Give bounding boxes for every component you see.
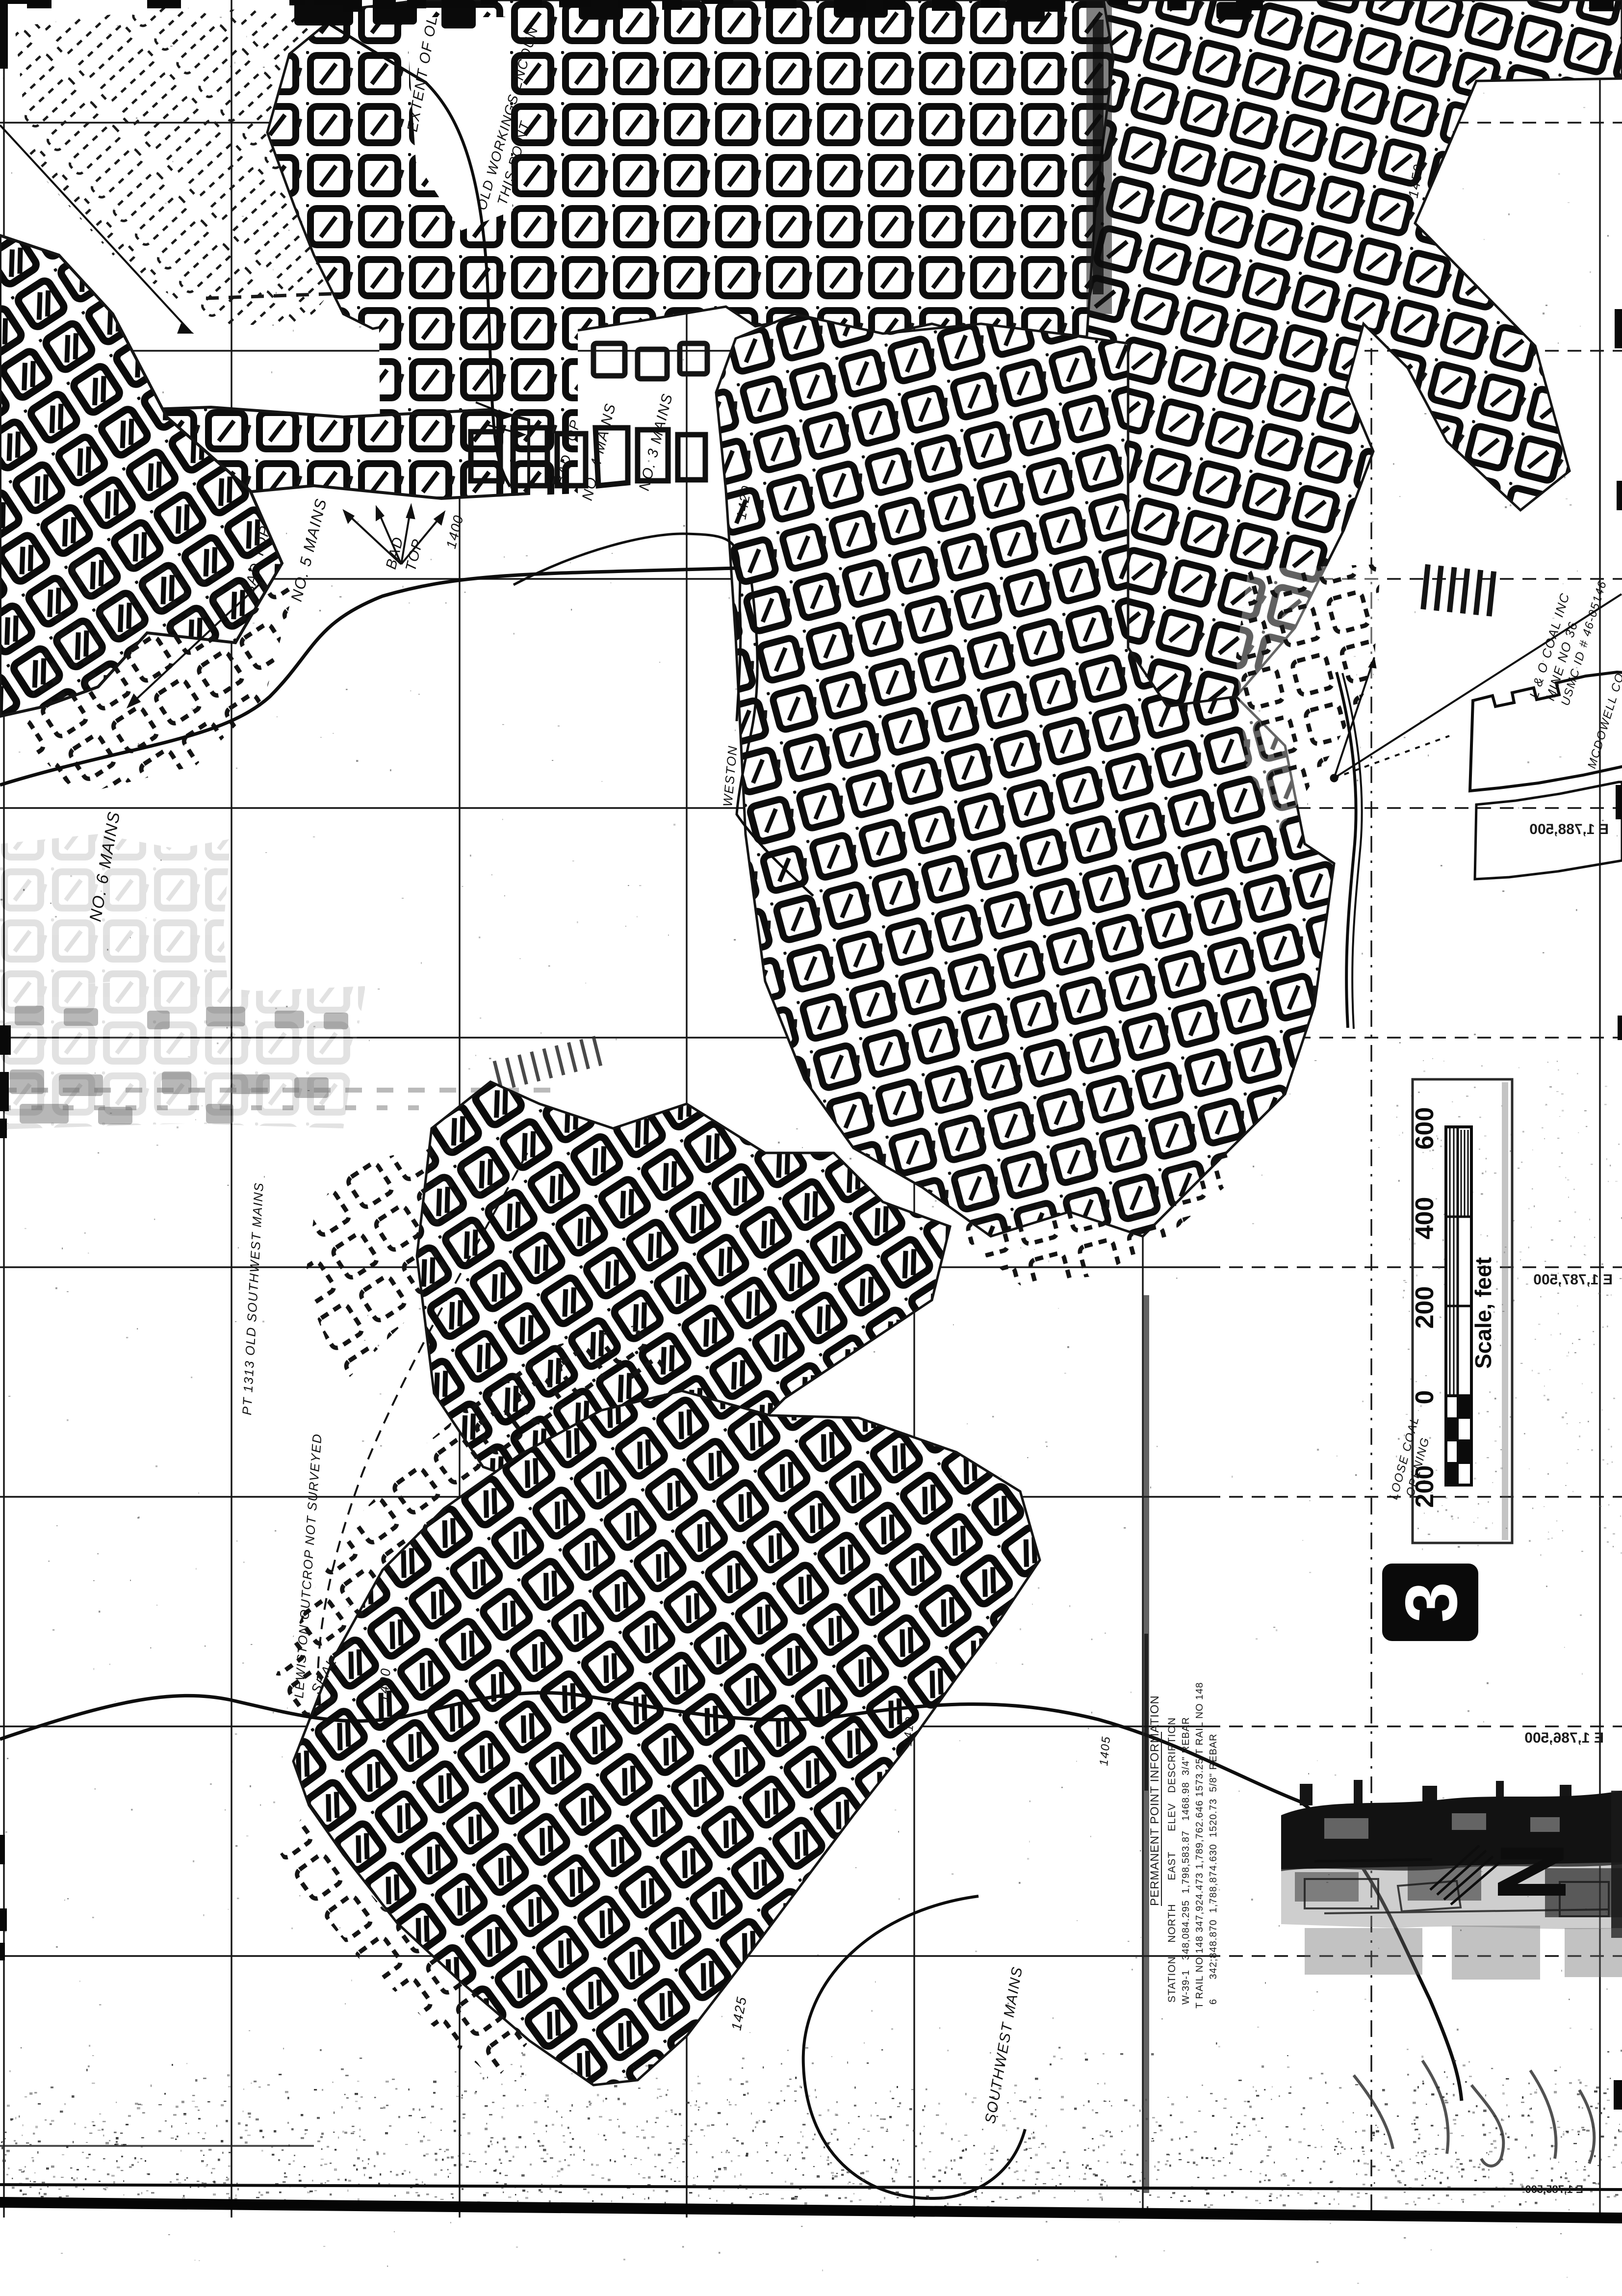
svg-text:PERMANENT POINT INFORMATION: PERMANENT POINT INFORMATION	[1148, 1695, 1161, 1906]
svg-text:200: 200	[1411, 1286, 1439, 1329]
svg-text:E 1,788,500: E 1,788,500	[1529, 821, 1609, 837]
svg-text:E 1,787,500: E 1,787,500	[1533, 1272, 1613, 1288]
svg-text:1410: 1410	[901, 1716, 917, 1747]
svg-text:600: 600	[1411, 1107, 1439, 1150]
svg-text:T RAIL NO 148 347,924.473 1,: T RAIL NO 148 347,924.473 1,789,762.646 …	[1194, 1682, 1205, 2009]
svg-text:Scale, feet: Scale, feet	[1470, 1257, 1496, 1369]
svg-text:0: 0	[1411, 1390, 1439, 1405]
svg-text:1405: 1405	[1097, 1735, 1113, 1767]
svg-text:W-39-1 348,084.295 1,798,58: W-39-1 348,084.295 1,798,583.87 1468.98 …	[1181, 1717, 1191, 2005]
svg-text:E 1,785,500: E 1,785,500	[1525, 2183, 1583, 2195]
svg-text:1400: 1400	[375, 1667, 393, 1703]
svg-text:E 1,786,500: E 1,786,500	[1524, 1730, 1604, 1746]
svg-text:400: 400	[1411, 1197, 1439, 1240]
svg-text:3: 3	[1390, 1582, 1472, 1622]
svg-text:6 342,848.870 1,788,874.: 6 342,848.870 1,788,874.630 1520.73 5/8"…	[1208, 1733, 1219, 2005]
svg-text:STATION NORTH EAST: STATION NORTH EAST ELEV DESCRIPTION	[1166, 1717, 1178, 2003]
